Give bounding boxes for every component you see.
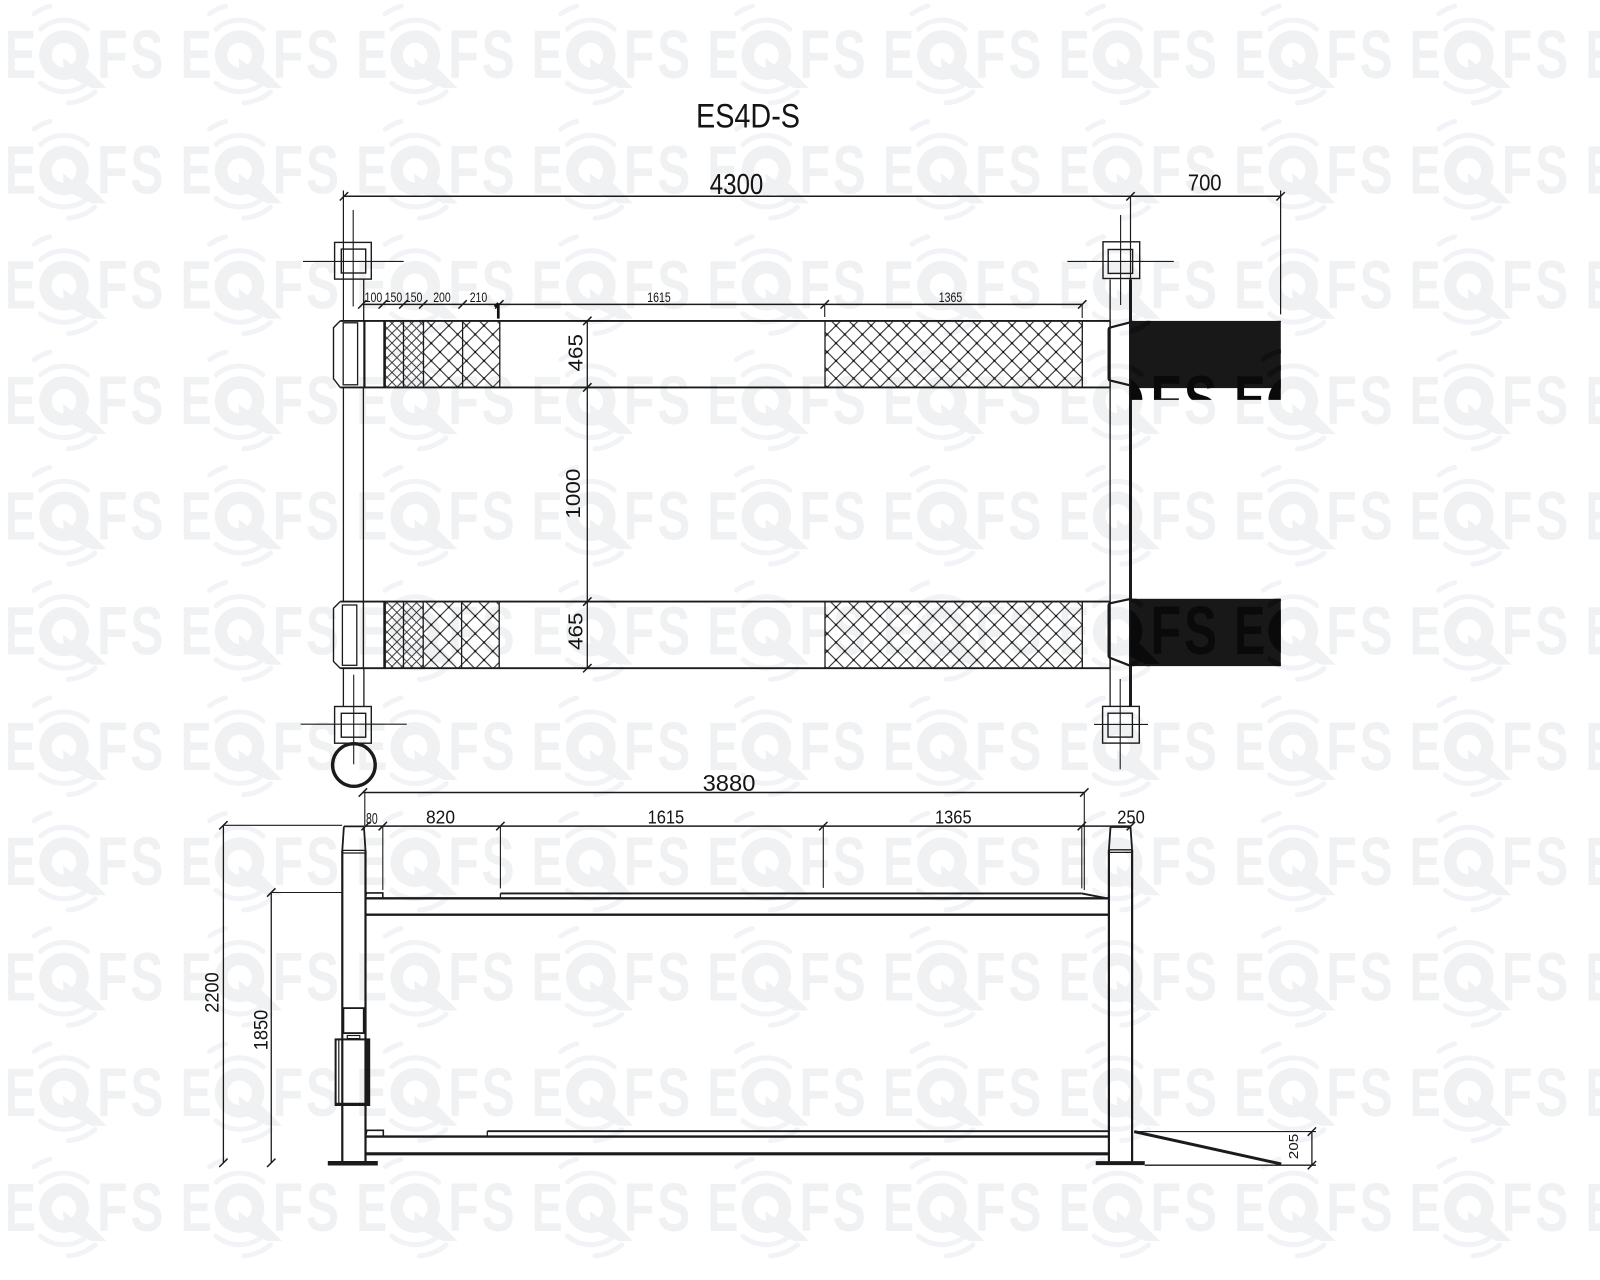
svg-text:205: 205 bbox=[1286, 1134, 1301, 1160]
svg-text:ES4D-S: ES4D-S bbox=[696, 98, 800, 136]
